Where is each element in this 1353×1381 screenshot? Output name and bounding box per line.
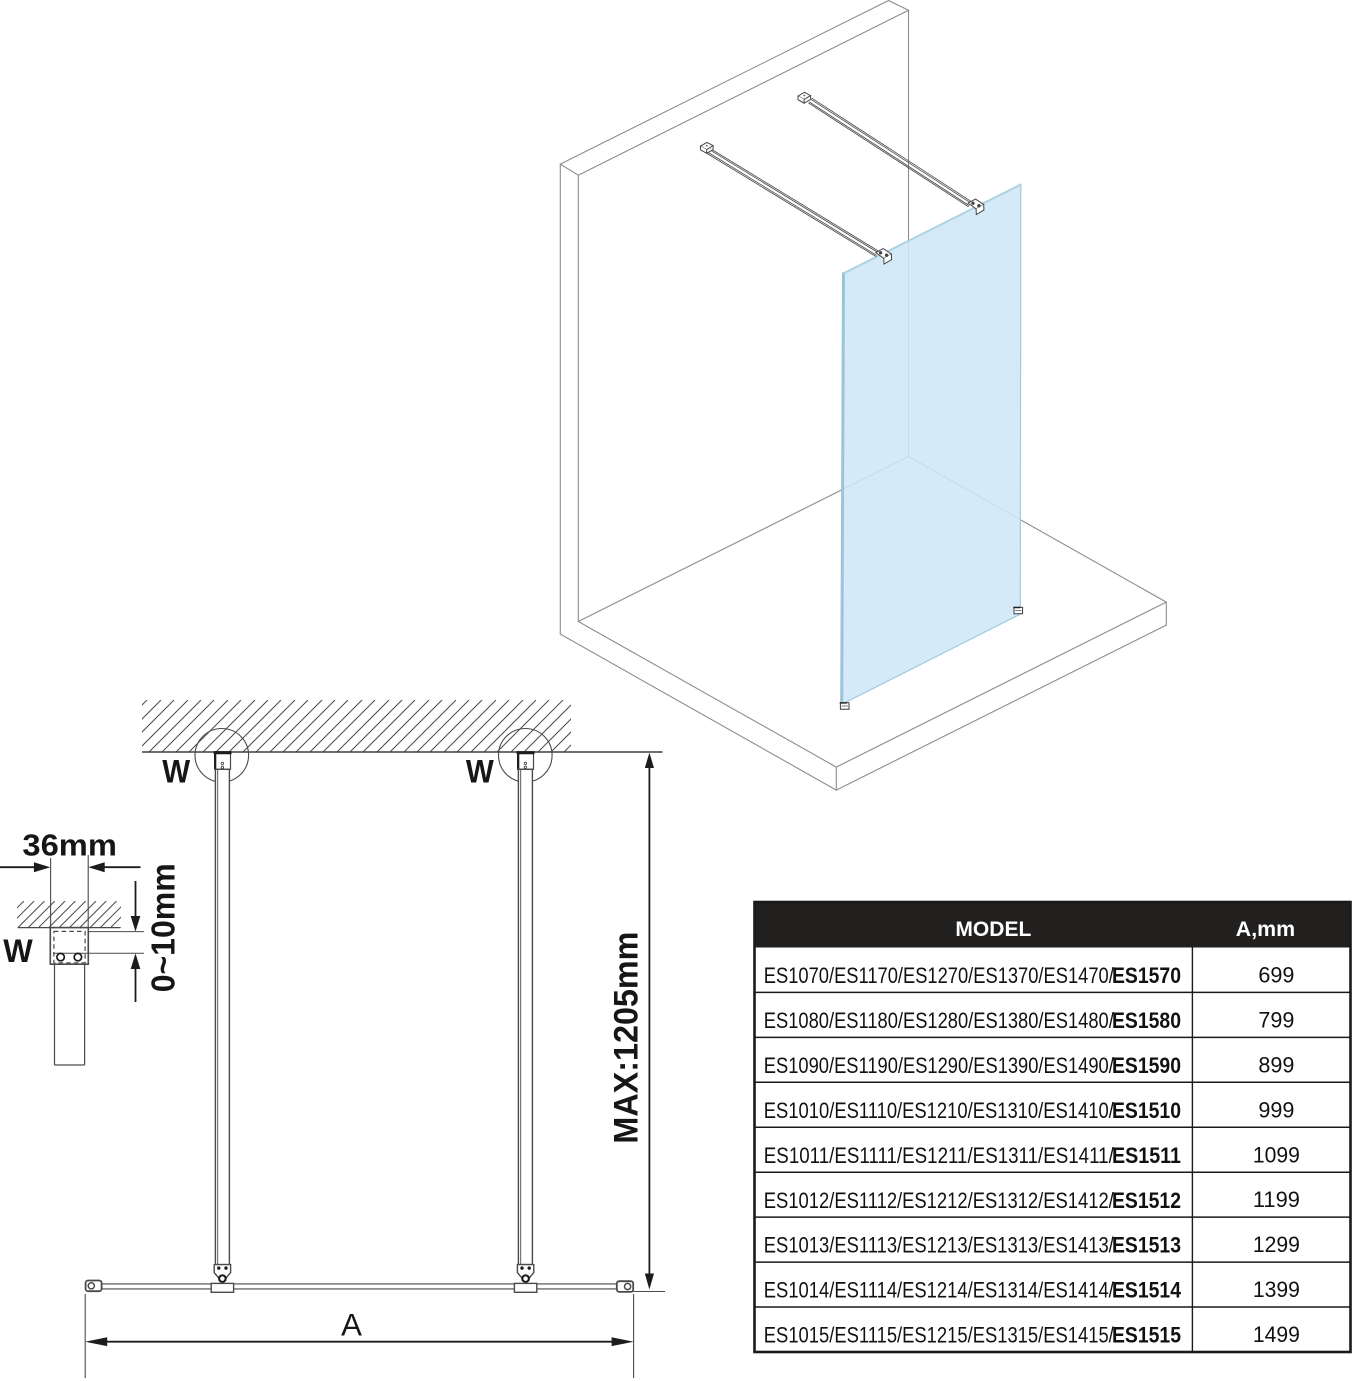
svg-text:ES1012/ES1112/ES1212/ES1312/ES: ES1012/ES1112/ES1212/ES1312/ES1412/ (764, 1188, 1115, 1213)
svg-text:999: 999 (1258, 1097, 1294, 1122)
svg-text:ES1514: ES1514 (1112, 1278, 1182, 1303)
svg-text:699: 699 (1258, 963, 1294, 988)
svg-text:ES1580: ES1580 (1112, 1008, 1181, 1033)
svg-text:ES1512: ES1512 (1112, 1188, 1181, 1213)
svg-text:MAX:1205mm: MAX:1205mm (607, 932, 645, 1144)
svg-text:1099: 1099 (1253, 1142, 1300, 1167)
svg-text:ES1010/ES1110/ES1210/ES1310/ES: ES1010/ES1110/ES1210/ES1310/ES1410/ (764, 1098, 1115, 1123)
svg-text:1499: 1499 (1253, 1322, 1300, 1347)
svg-text:0~10mm: 0~10mm (145, 863, 182, 992)
svg-text:ES1014/ES1114/ES1214/ES1314/ES: ES1014/ES1114/ES1214/ES1314/ES1414/ (764, 1278, 1115, 1303)
svg-text:ES1080/ES1180/ES1280/ES1380/ES: ES1080/ES1180/ES1280/ES1380/ES1480/ (764, 1008, 1115, 1033)
svg-text:W: W (466, 754, 494, 790)
svg-text:ES1070/ES1170/ES1270/ES1370/ES: ES1070/ES1170/ES1270/ES1370/ES1470/ (764, 963, 1115, 988)
svg-text:ES1590: ES1590 (1112, 1053, 1181, 1078)
svg-text:ES1090/ES1190/ES1290/ES1390/ES: ES1090/ES1190/ES1290/ES1390/ES1490/ (764, 1053, 1115, 1078)
svg-text:MODEL: MODEL (955, 916, 1031, 941)
svg-text:1399: 1399 (1253, 1277, 1300, 1302)
svg-text:ES1515: ES1515 (1112, 1323, 1181, 1348)
svg-text:ES1015/ES1115/ES1215/ES1315/ES: ES1015/ES1115/ES1215/ES1315/ES1415/ (764, 1323, 1115, 1348)
svg-text:ES1011/ES1111/ES1211/ES1311/ES: ES1011/ES1111/ES1211/ES1311/ES1411/ (764, 1143, 1115, 1168)
svg-text:36mm: 36mm (22, 828, 116, 863)
svg-text:ES1513: ES1513 (1112, 1233, 1181, 1258)
svg-text:ES1570: ES1570 (1112, 963, 1181, 988)
svg-text:W: W (3, 933, 33, 969)
svg-text:A: A (341, 1307, 363, 1343)
svg-text:ES1511: ES1511 (1112, 1143, 1181, 1168)
svg-text:ES1510: ES1510 (1112, 1098, 1181, 1123)
svg-text:799: 799 (1258, 1007, 1294, 1032)
svg-text:899: 899 (1258, 1052, 1294, 1077)
svg-text:1199: 1199 (1253, 1187, 1300, 1212)
svg-text:1299: 1299 (1253, 1232, 1300, 1257)
svg-text:A,mm: A,mm (1236, 916, 1295, 941)
svg-text:W: W (162, 754, 190, 790)
svg-text:ES1013/ES1113/ES1213/ES1313/ES: ES1013/ES1113/ES1213/ES1313/ES1413/ (764, 1233, 1115, 1258)
